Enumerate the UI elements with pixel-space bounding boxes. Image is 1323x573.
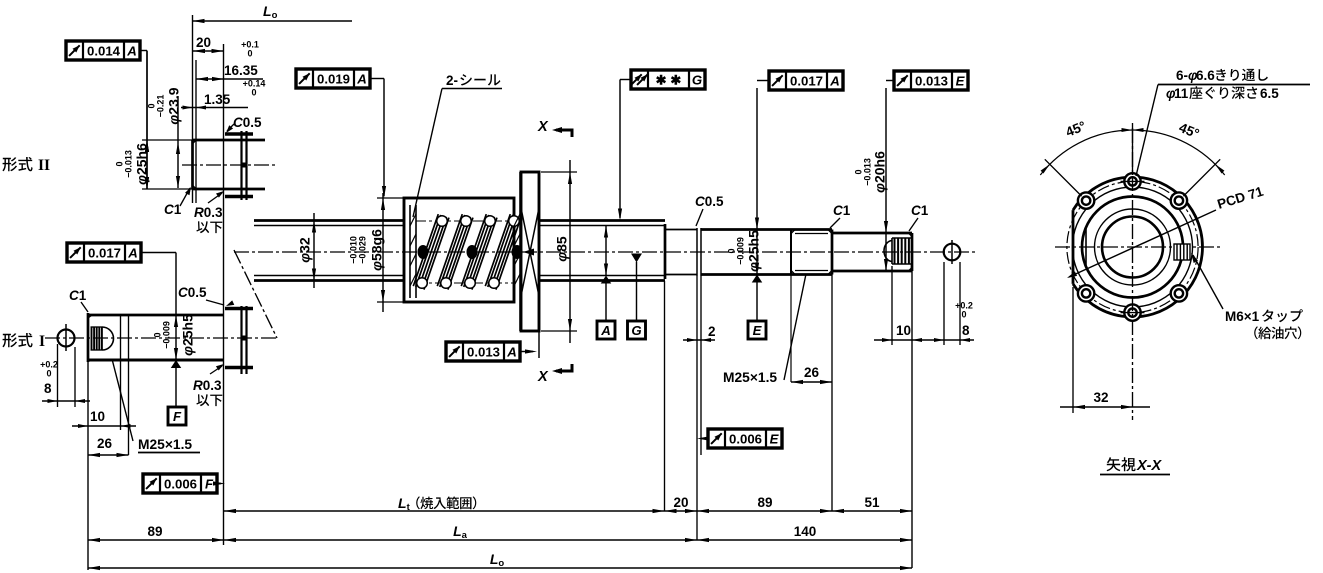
svg-text:−0.029: −0.029 — [358, 236, 368, 264]
svg-text:φ85: φ85 — [554, 236, 570, 262]
svg-text:32: 32 — [1093, 390, 1108, 405]
svg-text:26: 26 — [97, 436, 113, 451]
svg-text:φ58g6: φ58g6 — [369, 229, 385, 271]
svg-text:M25×1.5: M25×1.5 — [723, 370, 777, 385]
svg-text:X: X — [537, 369, 549, 385]
svg-text:✱ ✱: ✱ ✱ — [656, 72, 682, 87]
svg-text:F: F — [205, 476, 214, 491]
svg-text:φ23.9: φ23.9 — [166, 87, 182, 124]
svg-text:20: 20 — [196, 35, 211, 50]
svg-text:−0.21: −0.21 — [156, 95, 166, 118]
svg-text:16.35: 16.35 — [224, 63, 258, 78]
svg-text:11: 11 — [1174, 86, 1189, 101]
svg-text:II: II — [38, 157, 50, 174]
svg-text:I: I — [39, 333, 45, 350]
svg-text:E: E — [753, 323, 763, 338]
svg-text:C1: C1 — [911, 203, 929, 218]
svg-text:A: A — [126, 43, 137, 58]
svg-text:6-: 6- — [1176, 68, 1188, 83]
svg-text:E: E — [956, 73, 966, 88]
svg-text:0.006: 0.006 — [729, 431, 762, 446]
svg-text:X-X: X-X — [1136, 458, 1163, 474]
svg-text:10: 10 — [90, 409, 105, 424]
svg-text:F: F — [173, 409, 182, 424]
svg-text:0.019: 0.019 — [317, 71, 350, 86]
svg-text:26: 26 — [804, 365, 820, 380]
svg-text:−0.013: −0.013 — [863, 158, 873, 186]
svg-text:E: E — [770, 431, 780, 446]
svg-text:0.013: 0.013 — [915, 73, 948, 88]
svg-text:A: A — [600, 323, 611, 338]
svg-text:A: A — [829, 73, 840, 88]
svg-text:140: 140 — [794, 524, 817, 539]
svg-text:−0.009: −0.009 — [736, 237, 746, 265]
svg-text:C1: C1 — [833, 203, 851, 218]
svg-text:0.013: 0.013 — [467, 344, 500, 359]
svg-text:0: 0 — [46, 369, 51, 379]
svg-text:G: G — [631, 323, 641, 338]
svg-text:10: 10 — [896, 323, 911, 338]
svg-text:−0.013: −0.013 — [124, 150, 134, 178]
svg-text:R0.3: R0.3 — [193, 378, 222, 393]
svg-text:φ32: φ32 — [297, 237, 313, 263]
svg-text:1.35: 1.35 — [204, 92, 231, 107]
svg-text:C0.5: C0.5 — [695, 194, 724, 209]
svg-text:8: 8 — [962, 323, 970, 338]
svg-text:C0.5: C0.5 — [178, 285, 207, 300]
svg-text:0: 0 — [961, 310, 966, 320]
svg-text:φ25h6: φ25h6 — [134, 143, 150, 185]
svg-text:C1: C1 — [69, 288, 87, 303]
svg-text:0.006: 0.006 — [164, 476, 197, 491]
svg-text:A: A — [356, 71, 367, 86]
svg-text:φ25h5: φ25h5 — [180, 314, 196, 356]
svg-text:G: G — [692, 72, 702, 87]
svg-text:8: 8 — [44, 381, 52, 396]
svg-text:A: A — [506, 344, 517, 359]
svg-text:6.6: 6.6 — [1196, 68, 1215, 83]
svg-text:0.014: 0.014 — [87, 43, 121, 58]
svg-text:φ25h5: φ25h5 — [746, 230, 762, 272]
svg-text:6.5: 6.5 — [1260, 86, 1279, 101]
svg-text:89: 89 — [757, 495, 772, 510]
svg-text:89: 89 — [147, 524, 162, 539]
svg-text:C1: C1 — [164, 202, 182, 217]
svg-text:2-: 2- — [446, 73, 458, 88]
svg-text:M6×1: M6×1 — [1225, 309, 1260, 324]
svg-text:X: X — [537, 119, 549, 135]
svg-text:20: 20 — [673, 495, 688, 510]
svg-text:C0.5: C0.5 — [233, 115, 262, 130]
svg-text:R0.3: R0.3 — [194, 205, 223, 220]
svg-text:−0.009: −0.009 — [162, 321, 172, 349]
svg-text:0: 0 — [247, 49, 252, 59]
svg-text:0.017: 0.017 — [88, 245, 121, 260]
svg-text:2: 2 — [708, 324, 716, 339]
svg-text:51: 51 — [864, 495, 880, 510]
svg-text:A: A — [127, 245, 138, 260]
svg-text:M25×1.5: M25×1.5 — [138, 437, 192, 452]
svg-text:0: 0 — [251, 88, 256, 98]
svg-text:φ20h6: φ20h6 — [872, 151, 888, 193]
svg-text:0.017: 0.017 — [790, 73, 823, 88]
